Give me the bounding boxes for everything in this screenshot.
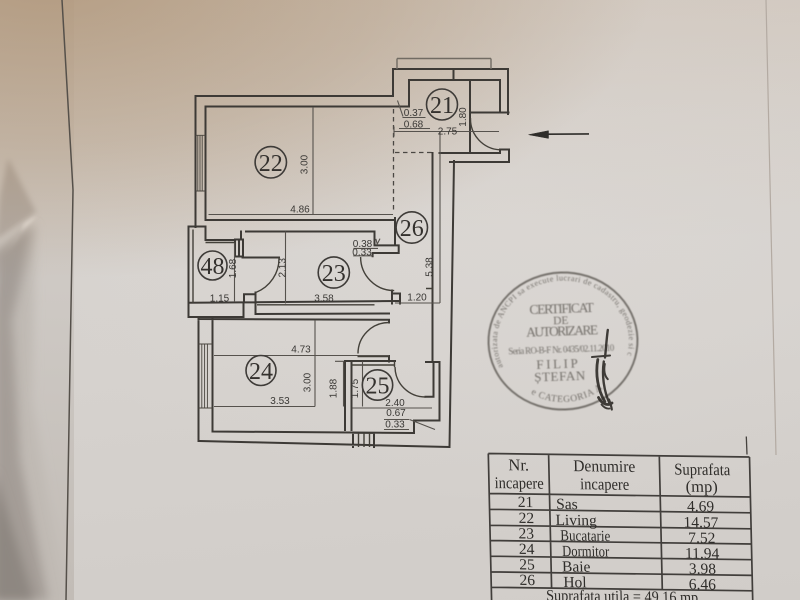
svg-text:Seria RO-B-F Nr. 0435/02.11.20: Seria RO-B-F Nr. 0435/02.11.2010 <box>508 343 615 357</box>
svg-text:AUTORIZARE: AUTORIZARE <box>526 322 599 340</box>
svg-text:ȘTEFAN: ȘTEFAN <box>534 368 586 385</box>
svg-text:e CATEGORIA A agr: e CATEGORIA A agr <box>0 0 607 425</box>
